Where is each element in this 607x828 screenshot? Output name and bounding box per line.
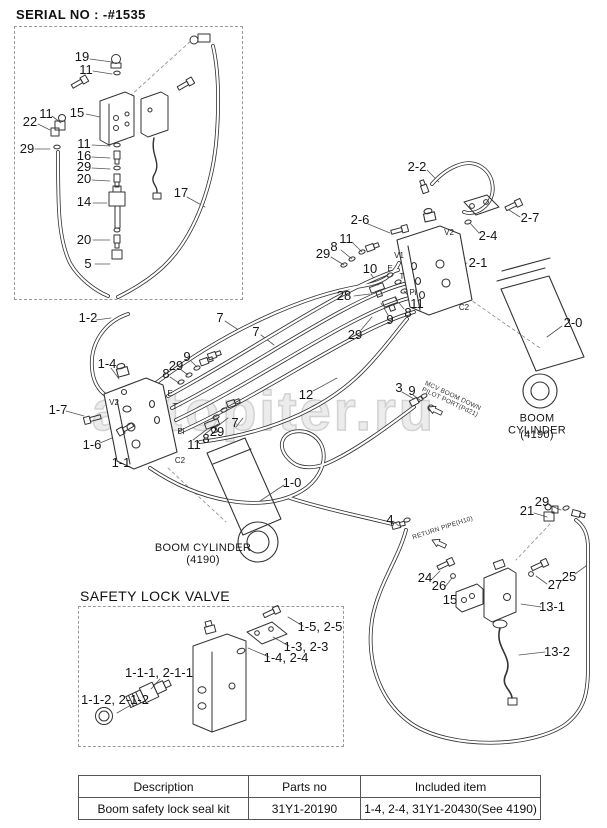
port-label: E	[167, 390, 172, 398]
callout-label: 11	[79, 63, 93, 77]
callout-label: 11	[187, 438, 201, 452]
callout-label: 11	[39, 107, 53, 121]
diagram-page: SERIAL NO : -#1535 autopiter.ru SAFETY L…	[0, 0, 607, 828]
port-label: C2	[175, 457, 185, 465]
callout-label: 29	[169, 359, 183, 373]
callout-label: 1-0	[283, 476, 302, 490]
port-label: C2	[459, 304, 469, 312]
callout-label: 4	[386, 513, 393, 527]
callout-label: 25	[562, 570, 576, 584]
table-row: Boom safety lock seal kit31Y1-201901-4, …	[79, 798, 541, 820]
port-label: T	[400, 273, 405, 281]
callout-label: 15	[70, 106, 84, 120]
callout-label: 12	[299, 388, 313, 402]
callout-label: 13-2	[544, 645, 570, 659]
callout-label: 29	[348, 328, 362, 342]
callout-label: 29	[210, 425, 224, 439]
callout-label: 11	[339, 232, 353, 246]
valve-block-right	[397, 207, 472, 315]
callout-label: 21	[520, 504, 534, 518]
callout-label: 29	[316, 247, 330, 261]
parts-table: DescriptionParts noIncluded item Boom sa…	[78, 775, 541, 820]
table-header-cell: Parts no	[249, 776, 361, 798]
table-header-cell: Included item	[361, 776, 541, 798]
callout-label: 20	[77, 233, 91, 247]
callout-label: 1-1-2, 2-1-2	[81, 693, 149, 707]
cylinder-label: (4190)	[186, 555, 220, 567]
table-cell: 1-4, 2-4, 31Y1-20430(See 4190)	[361, 798, 541, 820]
port-label: V1	[394, 252, 404, 260]
callout-label: 17	[174, 186, 188, 200]
port-label: V2	[109, 399, 119, 407]
cylinder-label: BOOM CYLINDER	[155, 543, 251, 555]
solenoid-valve	[456, 559, 517, 705]
callout-label: 1-4, 2-4	[264, 651, 309, 665]
callout-label: 9	[386, 313, 393, 327]
port-label: T	[173, 403, 178, 411]
table-header-row: DescriptionParts noIncluded item	[79, 776, 541, 798]
callout-label: 2-0	[564, 316, 583, 330]
callout-label: 8	[202, 432, 209, 446]
callout-label: 1-7	[49, 403, 68, 417]
callout-label: 8	[162, 367, 169, 381]
callout-label: 27	[548, 578, 562, 592]
callout-label: 8	[330, 240, 337, 254]
table-cell: 31Y1-20190	[249, 798, 361, 820]
boom-cylinder-right	[497, 258, 584, 408]
callout-label: 7	[216, 311, 223, 325]
callout-label: 11	[410, 297, 424, 311]
callout-label: 1-4	[98, 357, 117, 371]
callout-label: 22	[23, 115, 37, 129]
callout-label: 28	[337, 289, 351, 303]
callout-label: 7	[252, 325, 259, 339]
callout-label: 1-2	[79, 311, 98, 325]
callout-label: 13-1	[539, 600, 565, 614]
callout-label: 2-1	[469, 256, 488, 270]
callout-label: 29	[535, 495, 549, 509]
callout-label: 15	[443, 593, 457, 607]
callout-label: 10	[363, 262, 377, 276]
callout-label: 5	[84, 257, 91, 271]
callout-label: 14	[77, 195, 91, 209]
port-label: Pi	[177, 428, 184, 436]
callout-label: 2-4	[479, 229, 498, 243]
callout-label: 24	[418, 571, 432, 585]
callout-label: 1-6	[83, 438, 102, 452]
callout-label: 1-1-1, 2-1-1	[125, 666, 193, 680]
callout-label: 1-1	[112, 456, 131, 470]
callout-label: 3	[395, 381, 402, 395]
callout-label: 2-2	[408, 160, 427, 174]
cylinder-label: (4190)	[520, 430, 554, 442]
callout-label: 7	[231, 416, 238, 430]
callout-label: 1-5, 2-5	[298, 620, 343, 634]
callout-label: 29	[20, 142, 34, 156]
port-label: V2	[444, 229, 454, 237]
port-label: Pi	[409, 289, 416, 297]
callout-label: 26	[432, 579, 446, 593]
callout-label: 20	[77, 172, 91, 186]
callout-label: 9	[408, 384, 415, 398]
table-header-cell: Description	[79, 776, 249, 798]
callout-label: 9	[183, 350, 190, 364]
inset-artwork	[51, 34, 210, 259]
callout-label: 2-7	[521, 211, 540, 225]
port-label: E	[387, 265, 392, 273]
table-cell: Boom safety lock seal kit	[79, 798, 249, 820]
callout-label: 2-6	[351, 213, 370, 227]
